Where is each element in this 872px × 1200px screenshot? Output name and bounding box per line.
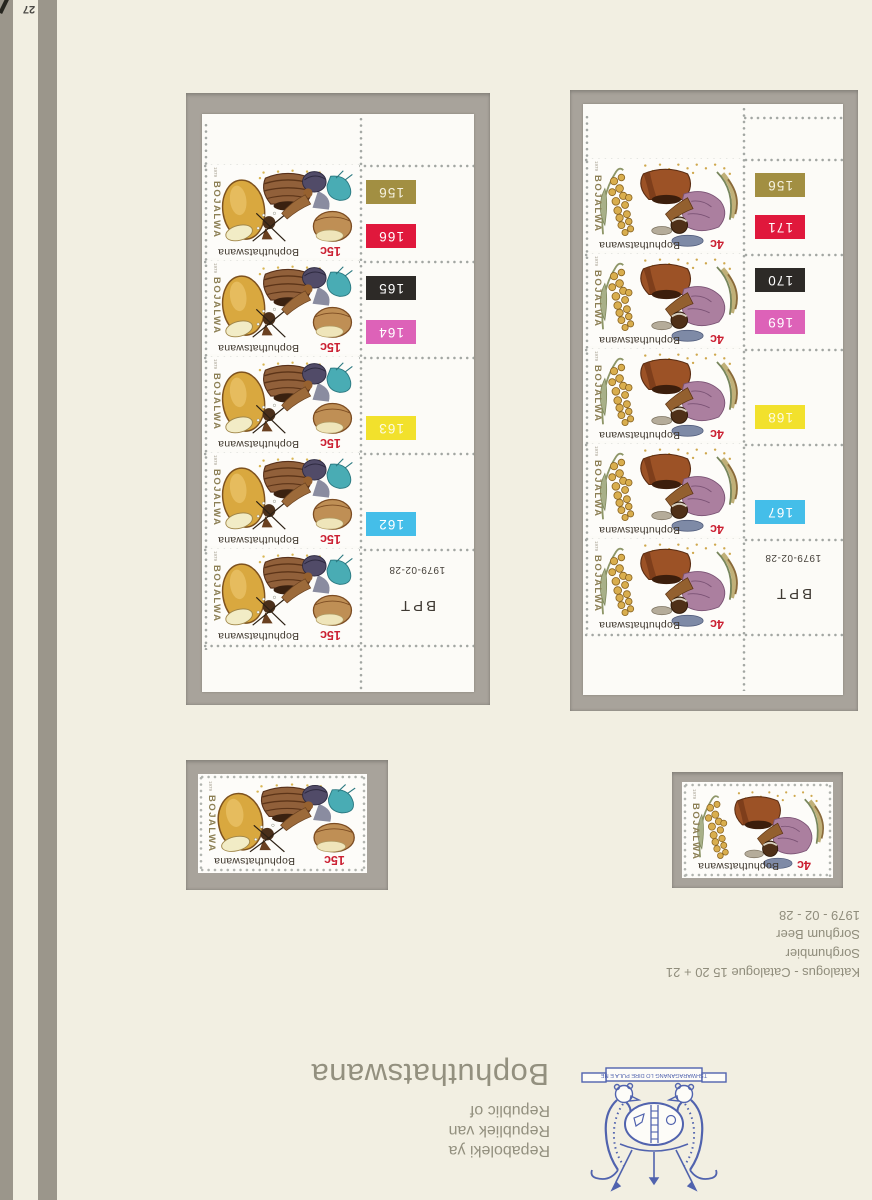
sheet-number: 168 [767,410,793,425]
color-control-chip: 156 [755,173,805,197]
sheet-number: 166 [378,229,404,244]
stamp-year: 1979 [213,551,218,561]
catalog-caption: Katalogus - Catalogue 15 20 + 21 Sorghum… [650,906,860,982]
stamp-artwork [211,455,356,544]
color-control-chip: 171 [755,215,805,239]
perforation-row [583,633,843,637]
beer-straining-illustration [211,455,356,544]
color-control-chip: 169 [755,310,805,334]
color-control-chip: 163 [366,416,416,440]
color-control-chip: 156 [366,180,416,204]
catalog-line: Sorghum Beer [650,925,860,944]
republic-line: Republiek van [438,1120,550,1140]
stamp-artwork [592,446,739,534]
stamp-country-name: Bophuthatswana [218,342,299,354]
color-control-chip: 165 [366,276,416,300]
stamp-title-bojalwa: BOJALWA [592,555,603,612]
stamp: 1979 BOJALWA Bophuthatswana 4c [589,444,742,536]
sheet-number: 156 [767,178,793,193]
perforation-edge [828,783,832,877]
sheet-number: 170 [767,273,793,288]
stamp: 1979 BOJALWA Bophuthatswana 15c [198,774,367,873]
stamp-year: 1979 [594,446,599,456]
stamp: 1979 BOJALWA Bophuthatswana 4c [589,254,742,346]
sheet-number: 164 [378,325,404,340]
stamp-value: 15c [324,853,345,867]
sheet-number: 156 [378,185,404,200]
stamp-title-bojalwa: BOJALWA [690,803,701,860]
perforation-edge [683,783,832,787]
mount-control-block-15c: 1979-02-28 BPT [186,93,490,705]
stamp-year: 1979 [692,789,697,799]
printing-date: 1979-02-28 [743,552,843,563]
perforation-edge [199,868,366,872]
stamp: 1979 BOJALWA Bophuthatswana 4c [589,349,742,441]
stamp-artwork [592,541,739,629]
republic-line: Repaboleki ya [438,1140,550,1160]
perforation-edge [362,775,366,872]
sorghum-grinding-illustration [592,446,739,534]
stamp-year: 1979 [213,455,218,465]
printer-imprint: BPT [743,585,843,602]
stamp-year: 1979 [208,781,213,791]
stamp-artwork [592,256,739,344]
stamp-title-bojalwa: BOJALWA [211,181,222,238]
color-control-chip: 167 [755,500,805,524]
stamp-value: 4c [710,427,724,441]
sorghum-grinding-illustration [592,541,739,629]
stamp-value: 4c [710,237,724,251]
color-control-chip: 168 [755,405,805,429]
stamp: 1979 BOJALWA Bophuthatswana 15c [208,549,359,642]
stamp-artwork [592,351,739,439]
stamp-country-name: Bophuthatswana [218,246,299,258]
beer-straining-illustration [211,167,356,256]
mount-control-block-4c: 1979-02-28 BPT [570,90,858,711]
stamp-artwork [211,263,356,352]
stamp-value: 15c [320,532,341,546]
beer-straining-illustration [211,359,356,448]
stamp-country-name: Bophuthatswana [599,334,680,346]
stamp-artwork [211,167,356,256]
stamp-artwork [592,161,739,249]
color-control-chip: 164 [366,320,416,344]
stamp-year: 1979 [594,161,599,171]
stamp-title-bojalwa: BOJALWA [592,460,603,517]
stamp-title-bojalwa: BOJALWA [592,270,603,327]
color-control-chip: 166 [366,224,416,248]
stamp-value: 4c [710,332,724,346]
stamp-artwork [211,359,356,448]
sorghum-grinding-illustration [592,161,739,249]
sheet-number: 163 [378,421,404,436]
stamp-year: 1979 [594,256,599,266]
stamp-title-bojalwa: BOJALWA [206,795,217,852]
mount-single-15c: 1979 BOJALWA Bophuthatswana 15c [186,760,388,890]
stamp: 1979 BOJALWA Bophuthatswana 15c [208,453,359,546]
stamp-value: 15c [320,244,341,258]
stamp-country-name: Bophuthatswana [218,534,299,546]
color-control-chip: 170 [755,268,805,292]
perforation-edge [199,775,366,779]
stamp: 1979 BOJALWA Bophuthatswana 15c [208,357,359,450]
printer-imprint: BPT [360,597,474,614]
stamp-country-name: Bophuthatswana [218,630,299,642]
album-page: 27 1979-02-28 BPT [0,0,872,1200]
country-title: Bophuthatswana [310,1056,550,1092]
catalog-line: Sorghumbier [650,944,860,963]
stamp-value: 15c [320,436,341,450]
stamp-country-name: Bophuthatswana [599,429,680,441]
beer-straining-illustration [211,263,356,352]
stamp-title-bojalwa: BOJALWA [211,565,222,622]
stamp: 1979 BOJALWA Bophuthatswana 15c [208,261,359,354]
mount-single-4c: 1979 BOJALWA Bophuthatswana 4c [672,772,843,888]
sheet-number: 167 [767,505,793,520]
catalog-line: 1979 - 02 - 28 [650,906,860,925]
control-block-sheet-15c: 1979-02-28 BPT [202,114,474,692]
sheet-number: 171 [767,220,793,235]
stamp-artwork [211,551,356,640]
catalog-line: Katalogus - Catalogue 15 20 + 21 [650,963,860,982]
stamp-year: 1979 [213,167,218,177]
sheet-number: 165 [378,281,404,296]
stamp-year: 1979 [594,351,599,361]
perforation-column [742,106,746,691]
stamp-value: 15c [320,340,341,354]
stamp-country-name: Bophuthatswana [599,619,680,631]
republic-line: Republic of [438,1100,550,1120]
perforation-edge [683,873,832,877]
color-control-chip: 162 [366,512,416,536]
sheet-number: 169 [767,315,793,330]
perforation-row [202,644,474,648]
binder-stripe [0,0,13,1200]
stamp: 1979 BOJALWA Bophuthatswana 4c [589,539,742,631]
stamp: 1979 BOJALWA Bophuthatswana 15c [208,165,359,258]
stamp-title-bojalwa: BOJALWA [211,277,222,334]
stamp-title-bojalwa: BOJALWA [592,365,603,422]
stamp-year: 1979 [213,359,218,369]
motto-text: TSHWARAGANANG LO DIRE PULA E NE [601,1072,708,1078]
perforation-edge [683,783,687,877]
coat-of-arms: TSHWARAGANANG LO DIRE PULA E NE [568,1060,740,1192]
stamp-country-name: Bophuthatswana [599,239,680,251]
stamp-value: 15c [320,628,341,642]
stamp-country-name: Bophuthatswana [698,860,779,872]
perforation-edge [199,775,203,872]
page-number: 27 [19,3,39,15]
stamp: 1979 BOJALWA Bophuthatswana 4c [682,782,833,878]
republic-caption: Repaboleki ya Republiek van Republic of [438,1100,550,1160]
binder-stripe [38,0,57,1200]
perforation-row [742,116,843,120]
stamp-title-bojalwa: BOJALWA [592,175,603,232]
printing-date: 1979-02-28 [360,564,474,575]
beer-straining-illustration [211,551,356,640]
stamp-value: 4c [710,617,724,631]
stamp: 1979 BOJALWA Bophuthatswana 4c [589,159,742,251]
stamp-year: 1979 [594,541,599,551]
stamp-value: 4c [710,522,724,536]
control-block-sheet-4c: 1979-02-28 BPT [583,104,843,695]
sheet-number: 162 [378,517,404,532]
stamp-title-bojalwa: BOJALWA [211,373,222,430]
stamp-year: 1979 [213,263,218,273]
stamp-value: 4c [797,858,811,872]
stamp-country-name: Bophuthatswana [218,438,299,450]
sorghum-grinding-illustration [592,256,739,344]
sorghum-grinding-illustration [592,351,739,439]
stamp-title-bojalwa: BOJALWA [211,469,222,526]
stamp-country-name: Bophuthatswana [599,524,680,536]
stamp-country-name: Bophuthatswana [214,855,295,867]
